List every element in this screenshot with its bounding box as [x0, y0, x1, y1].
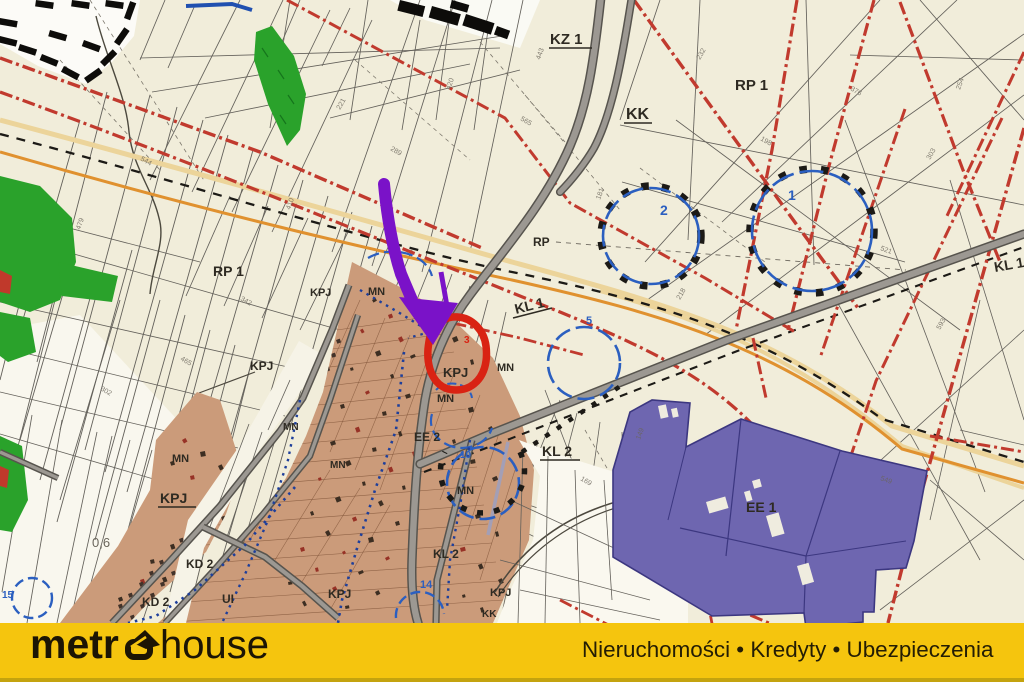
svg-text:MN: MN: [172, 453, 189, 465]
svg-text:house: house: [160, 623, 269, 667]
svg-text:KK: KK: [626, 106, 650, 123]
svg-text:MN: MN: [368, 286, 385, 298]
svg-text:2: 2: [660, 202, 668, 218]
svg-text:KL 2: KL 2: [542, 443, 572, 459]
svg-text:KPJ: KPJ: [490, 587, 511, 599]
svg-text:MN: MN: [283, 422, 299, 433]
svg-text:UI: UI: [222, 592, 234, 606]
svg-text:Nieruchomości • Kredyty • Ubez: Nieruchomości • Kredyty • Ubezpieczenia: [582, 637, 994, 662]
svg-text:10: 10: [460, 450, 472, 461]
svg-text:1: 1: [788, 187, 796, 203]
svg-text:15: 15: [2, 590, 14, 601]
svg-text:KL 2: KL 2: [433, 547, 459, 561]
svg-text:MN: MN: [497, 362, 514, 374]
svg-text:14: 14: [420, 579, 433, 591]
svg-text:5: 5: [586, 315, 592, 327]
svg-text:0,6: 0,6: [92, 535, 110, 550]
svg-text:KD 2: KD 2: [142, 595, 170, 609]
svg-text:EE 2: EE 2: [414, 430, 440, 444]
svg-text:KK: KK: [482, 609, 497, 620]
svg-text:3: 3: [464, 335, 470, 346]
svg-text:EE 1: EE 1: [746, 499, 777, 515]
svg-text:KPJ: KPJ: [310, 287, 331, 299]
svg-text:metr: metr: [30, 621, 119, 667]
svg-text:MN: MN: [457, 485, 474, 497]
svg-text:RP 1: RP 1: [213, 263, 244, 279]
svg-text:RP: RP: [533, 235, 550, 249]
svg-text:KZ 1: KZ 1: [550, 31, 583, 48]
svg-text:KPJ: KPJ: [250, 359, 273, 373]
svg-text:KPJ: KPJ: [443, 365, 468, 380]
svg-text:KPJ: KPJ: [160, 490, 187, 506]
svg-text:KPJ: KPJ: [328, 587, 351, 601]
svg-text:MN: MN: [437, 393, 454, 405]
svg-text:RP 1: RP 1: [735, 77, 768, 94]
svg-text:MN: MN: [330, 460, 346, 471]
svg-text:KD 2: KD 2: [186, 557, 214, 571]
